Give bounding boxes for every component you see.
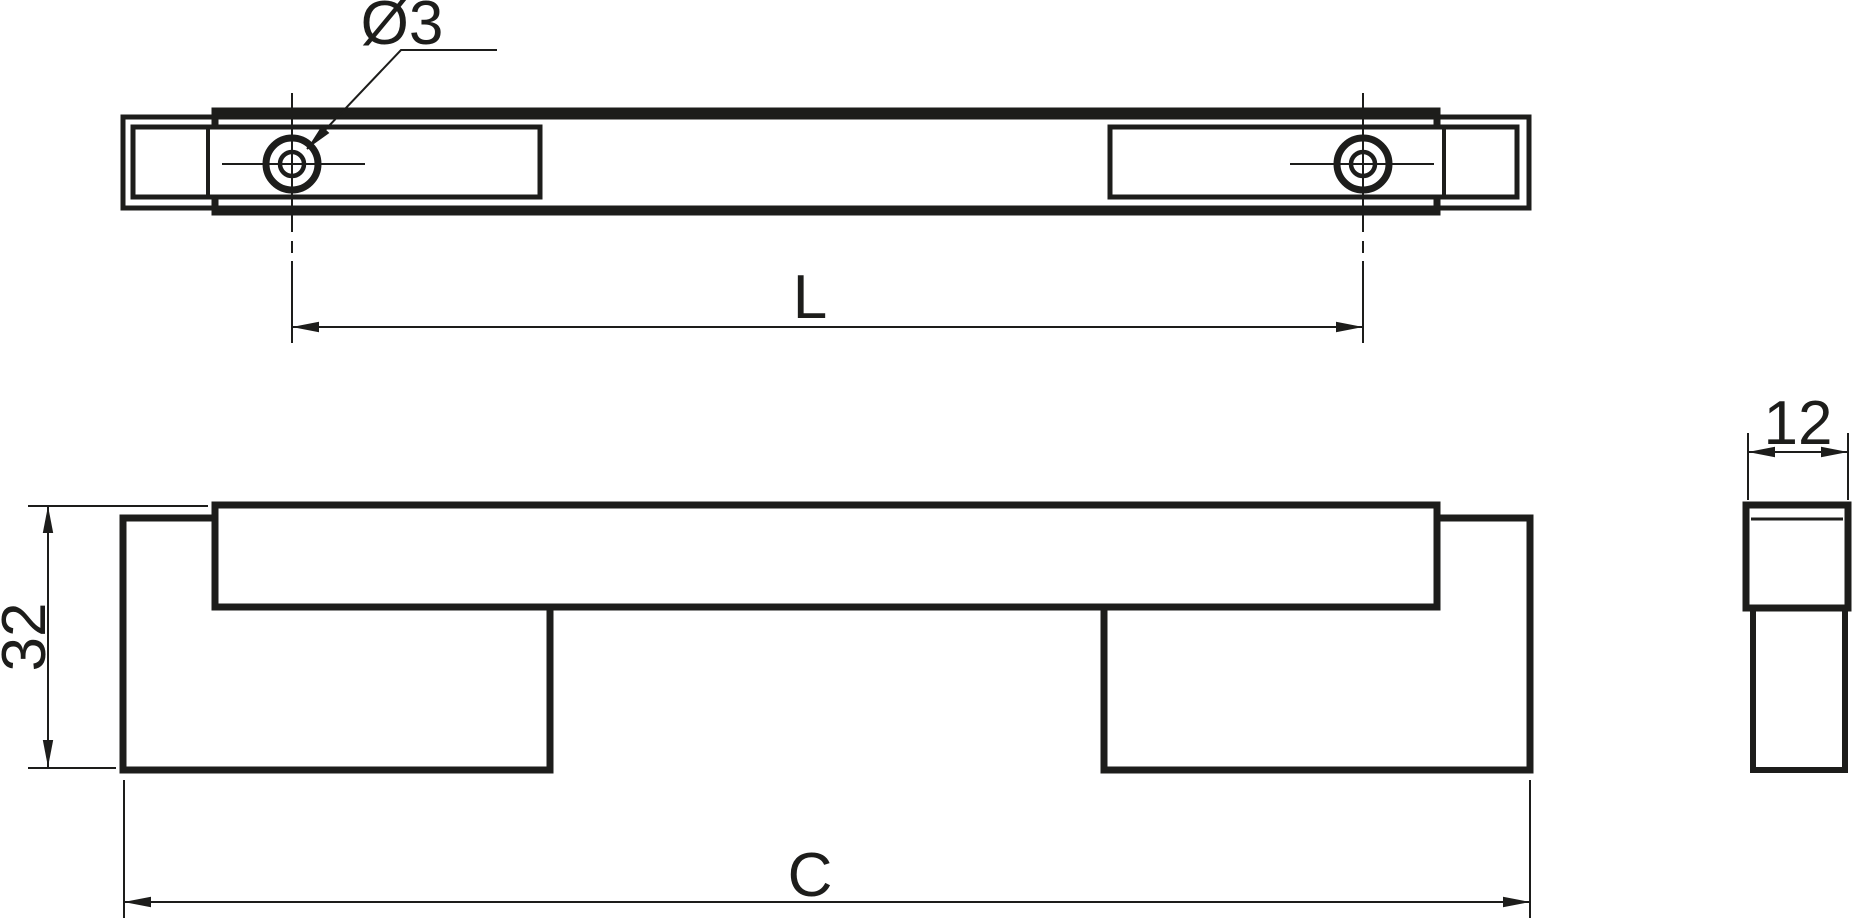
hole-spacing-label: L [793,263,827,332]
depth-label: 12 [1764,389,1833,458]
side-view-foot [1753,608,1845,770]
top-view-right-foot-plate [1110,127,1517,197]
overall-length-label: C [788,841,833,910]
height-label: 32 [0,603,59,672]
hole-diameter-label: Ø3 [361,0,444,58]
handle-drawing: Ø3 L 32 C 12 [0,0,1852,920]
top-view-left-foot-plate [133,127,540,197]
front-view-bar [215,505,1437,607]
side-view [1746,505,1848,770]
technical-drawing-canvas: Ø3 L 32 C 12 [0,0,1852,920]
